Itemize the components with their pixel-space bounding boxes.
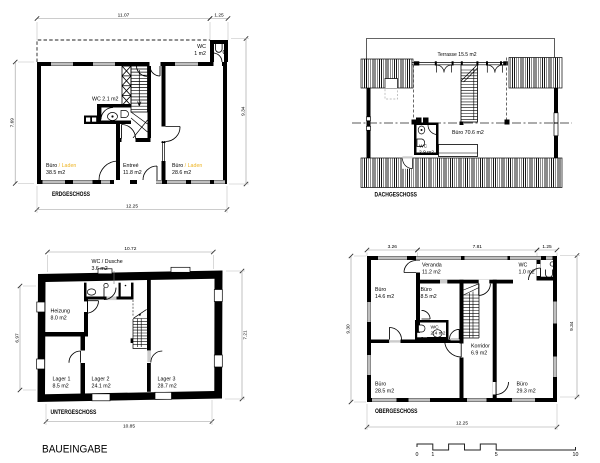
svg-text:0: 0 [416,452,419,458]
svg-text:9.30: 9.30 [346,324,352,334]
svg-text:28.6 m2: 28.6 m2 [172,170,191,176]
svg-text:Entreé: Entreé [123,163,139,169]
svg-text:Büro 70.6 m2: Büro 70.6 m2 [452,130,484,136]
svg-text:10.72: 10.72 [124,246,136,252]
svg-text:Büro: Büro [375,287,386,293]
svg-text:3.26: 3.26 [388,244,398,250]
svg-text:7.21: 7.21 [243,330,249,340]
svg-text:1.25: 1.25 [542,244,552,250]
svg-text:11.07: 11.07 [118,13,130,19]
svg-text:5: 5 [495,452,498,458]
svg-text:10: 10 [573,452,579,458]
svg-text:38.5 m2: 38.5 m2 [46,170,65,176]
svg-text:1: 1 [431,452,434,458]
svg-text:9.34: 9.34 [241,106,247,116]
svg-text:WC: WC [419,144,428,150]
svg-text:10.85: 10.85 [123,424,135,430]
svg-text:Büro / Laden: Büro / Laden [46,163,76,169]
svg-text:7.69: 7.69 [10,118,16,128]
svg-text:DACHGESCHOSS: DACHGESCHOSS [375,192,418,199]
svg-text:1.0 m2: 1.0 m2 [519,269,535,275]
svg-text:Büro / Laden: Büro / Laden [172,163,202,169]
svg-text:24.1 m2: 24.1 m2 [92,383,111,389]
svg-text:WC 2.1 m2: WC 2.1 m2 [92,97,119,103]
svg-text:1 m2: 1 m2 [194,51,206,57]
svg-text:WC: WC [431,325,440,331]
svg-text:Büro: Büro [517,382,528,388]
svg-text:2.4 m2: 2.4 m2 [431,331,446,337]
svg-text:28.5 m2: 28.5 m2 [375,388,394,394]
svg-text:29.3 m2: 29.3 m2 [517,388,536,394]
svg-text:1.25: 1.25 [214,13,224,19]
svg-text:WC: WC [519,263,528,269]
svg-text:ERDGESCHOSS: ERDGESCHOSS [52,191,90,198]
svg-text:OBERGESCHOSS: OBERGESCHOSS [375,408,418,415]
svg-text:7.81: 7.81 [473,244,483,250]
svg-text:11.8 m2: 11.8 m2 [123,170,142,176]
svg-text:8.0 m2: 8.0 m2 [51,315,67,321]
svg-text:Korridor: Korridor [471,344,490,350]
svg-text:8.5 m2: 8.5 m2 [53,383,69,389]
svg-text:Lager 1: Lager 1 [53,377,71,383]
svg-text:2.9 m2: 2.9 m2 [419,149,434,155]
svg-text:Veranda: Veranda [422,263,442,269]
svg-text:Lager 2: Lager 2 [92,377,110,383]
svg-text:UNTERGESCHOSS: UNTERGESCHOSS [51,409,97,416]
svg-text:12.25: 12.25 [126,204,138,210]
svg-text:BAUEINGABE: BAUEINGABE [42,444,108,456]
svg-text:28.7 m2: 28.7 m2 [158,383,177,389]
svg-text:Terrasse 15.5 m2: Terrasse 15.5 m2 [438,52,477,58]
svg-text:3.6 m2: 3.6 m2 [92,266,108,272]
svg-text:9.34: 9.34 [569,321,575,331]
svg-text:WC / Dusche: WC / Dusche [92,259,123,265]
svg-text:8.5 m2: 8.5 m2 [421,294,437,300]
svg-text:14.6 m2: 14.6 m2 [375,294,394,300]
svg-text:Büro: Büro [375,382,386,388]
svg-text:6.97: 6.97 [15,333,21,343]
svg-text:11.2 m2: 11.2 m2 [422,269,441,275]
svg-text:Lager 3: Lager 3 [158,377,176,383]
svg-text:12.25: 12.25 [456,421,468,427]
svg-text:WC: WC [197,44,206,50]
svg-text:Büro: Büro [421,287,432,293]
svg-text:6.9 m2: 6.9 m2 [471,350,487,356]
svg-text:Heizung: Heizung [51,309,70,315]
